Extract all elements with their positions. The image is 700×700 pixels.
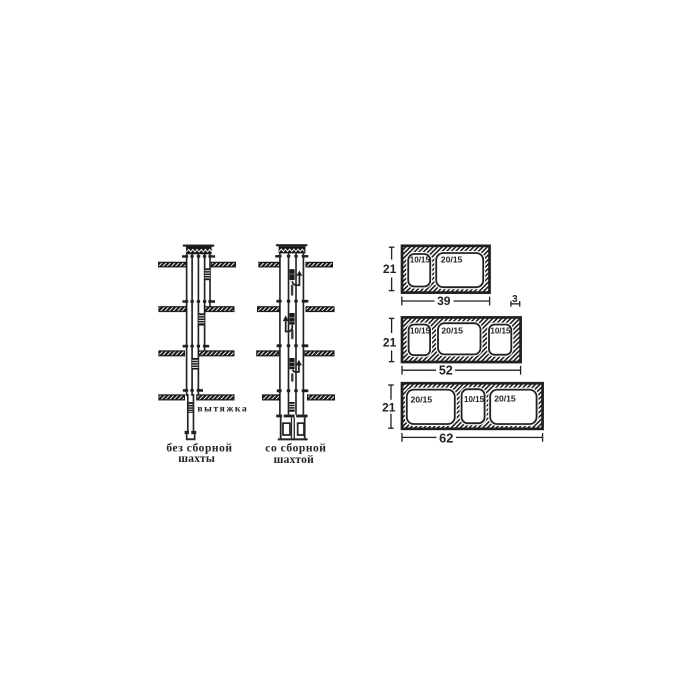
svg-text:шахты: шахты [178, 452, 215, 465]
svg-text:10/15: 10/15 [490, 327, 511, 336]
svg-text:62: 62 [439, 430, 453, 445]
svg-text:20/15: 20/15 [411, 395, 433, 405]
svg-text:10/15: 10/15 [410, 256, 431, 265]
svg-text:10/15: 10/15 [410, 327, 431, 336]
svg-text:10/15: 10/15 [464, 395, 485, 404]
svg-text:20/15: 20/15 [441, 254, 463, 264]
svg-text:52: 52 [439, 363, 453, 377]
svg-text:20/15: 20/15 [494, 394, 516, 404]
svg-text:вытяжка: вытяжка [197, 404, 248, 415]
svg-text:21: 21 [383, 262, 397, 276]
svg-text:21: 21 [382, 400, 396, 414]
svg-text:20/15: 20/15 [441, 326, 463, 336]
svg-text:шахтой: шахтой [274, 453, 314, 466]
svg-text:21: 21 [383, 335, 397, 349]
svg-text:39: 39 [437, 294, 451, 308]
svg-text:3: 3 [512, 294, 518, 305]
